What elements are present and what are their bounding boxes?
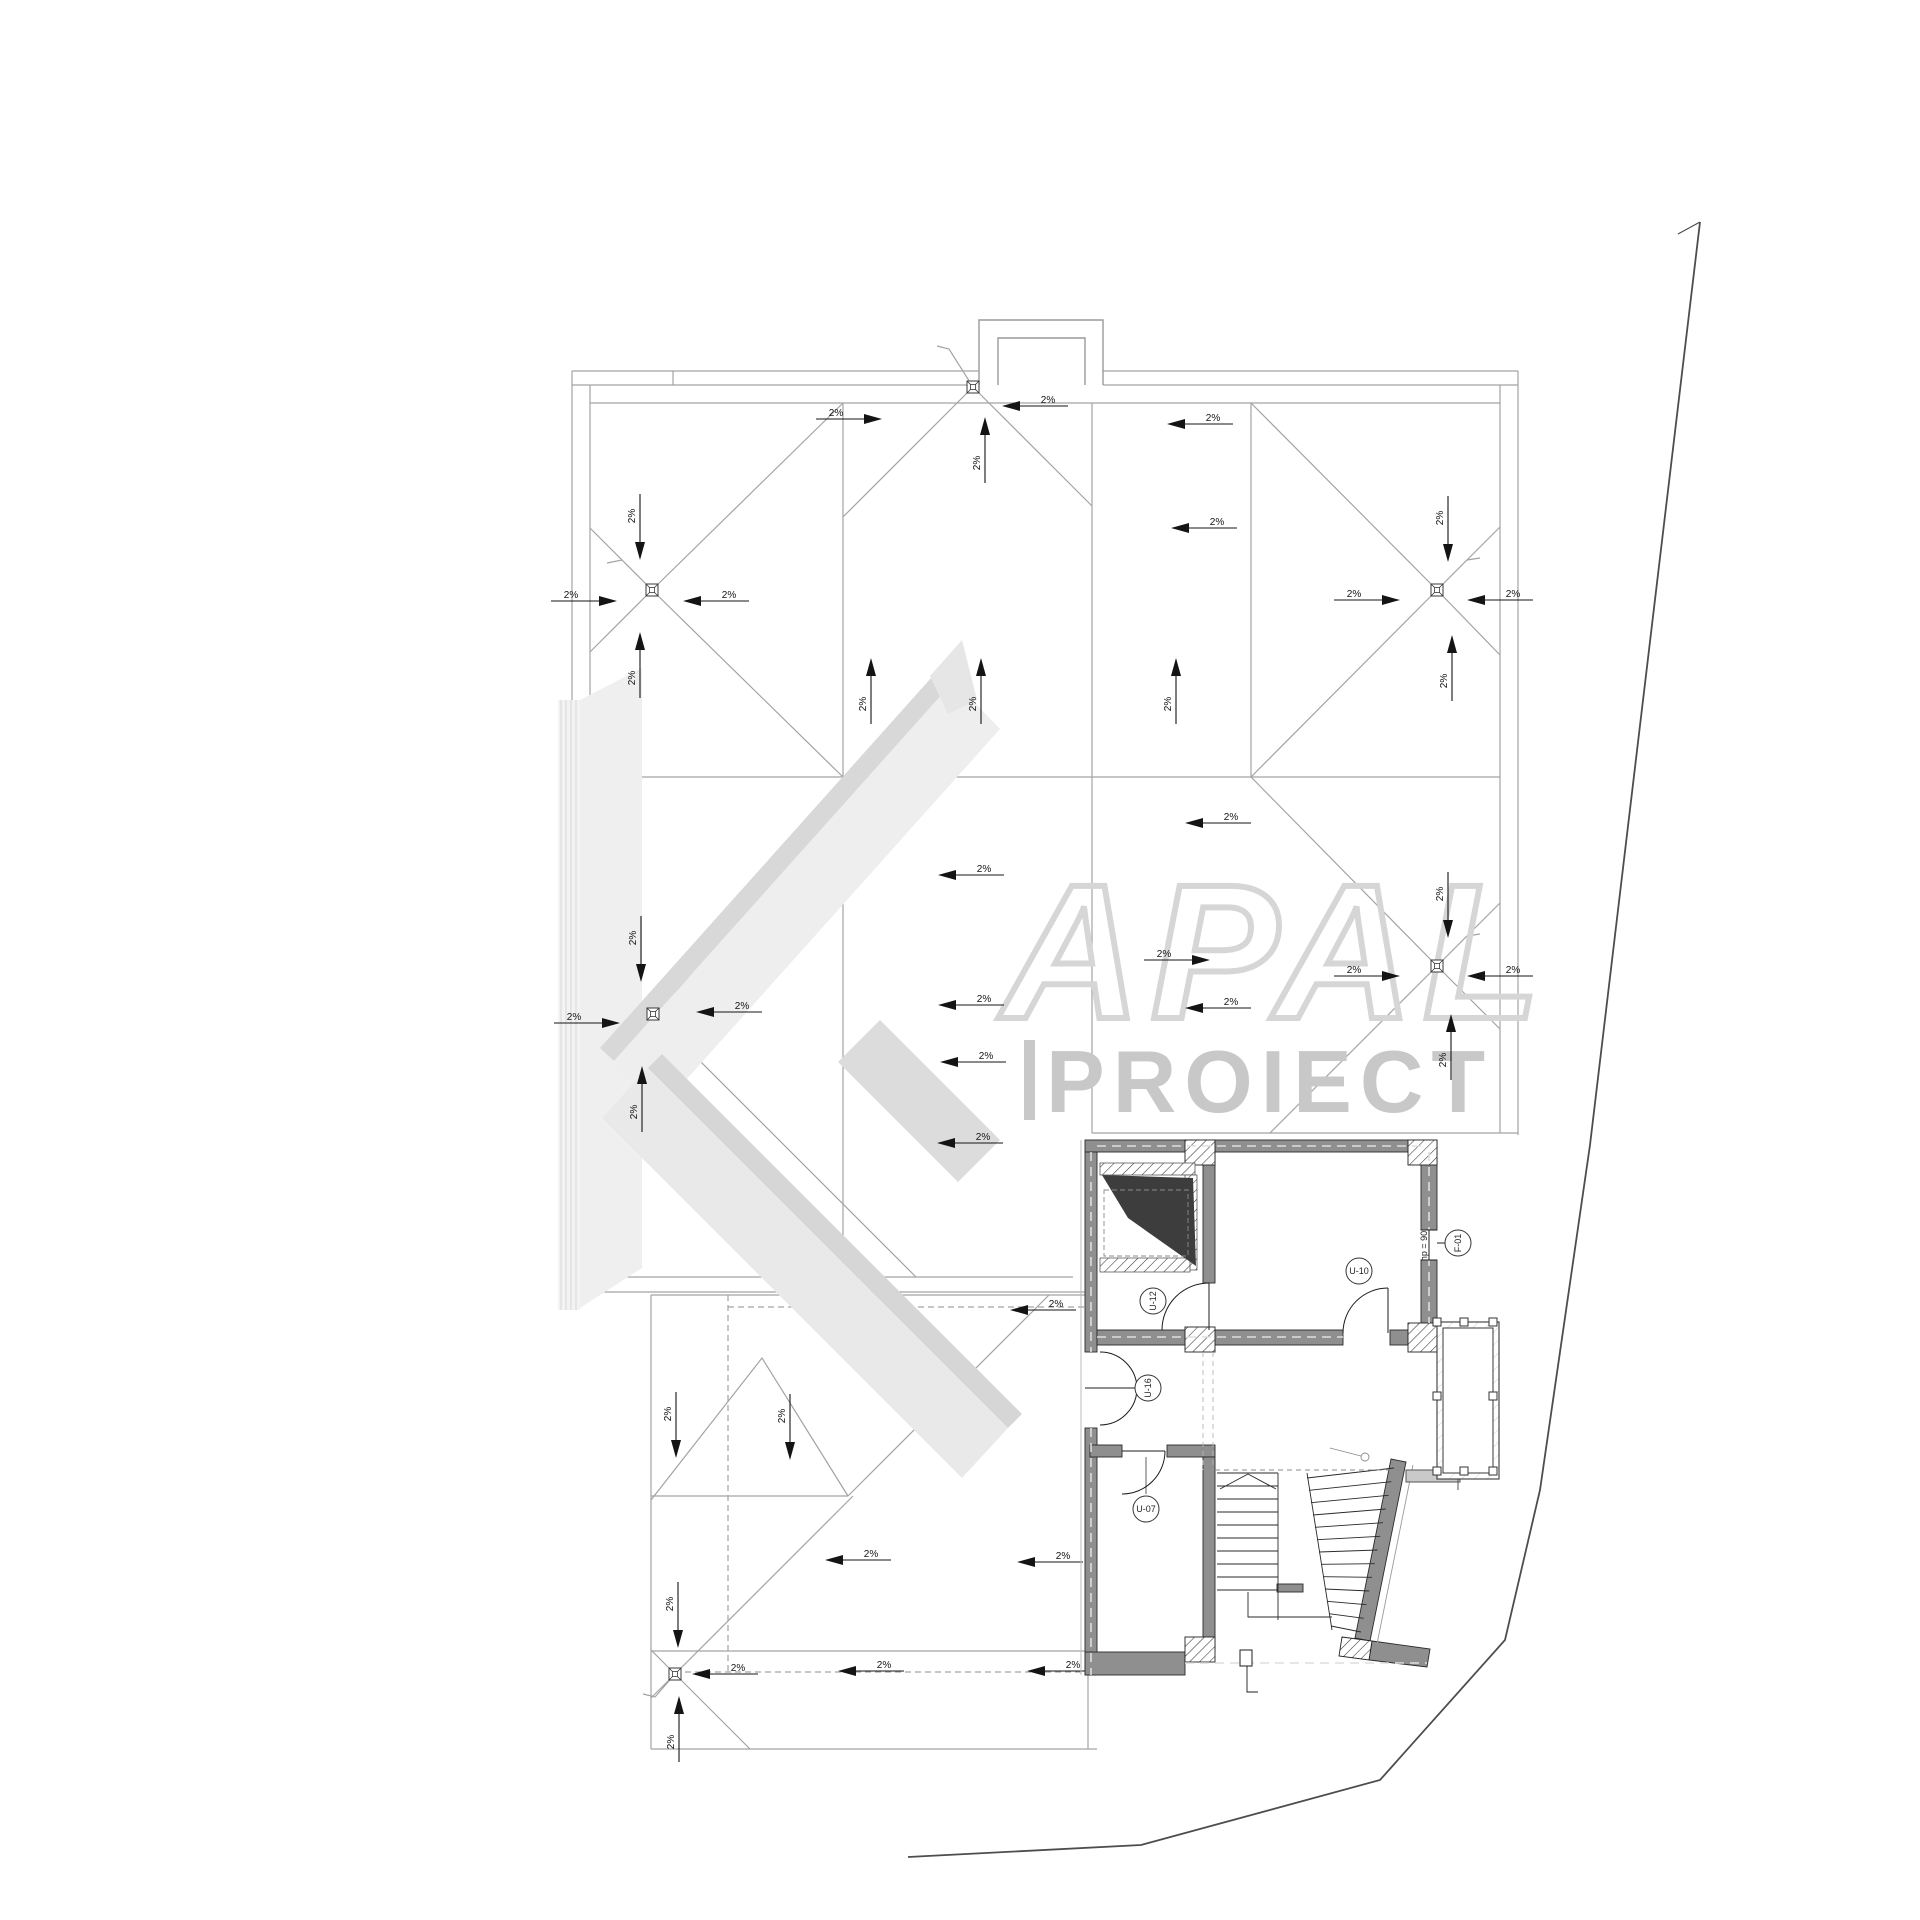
- slope-arrow: 2%: [972, 417, 990, 483]
- wall-room3-top-b: [1167, 1445, 1215, 1457]
- slope-arrow: 2%: [627, 494, 645, 560]
- svg-text:2%: 2%: [663, 1407, 674, 1422]
- slope-arrow: 2%: [816, 408, 882, 424]
- svg-text:F-01: F-01: [1453, 1234, 1463, 1253]
- slope-arrow: 2%: [1439, 635, 1457, 701]
- svg-text:2%: 2%: [829, 408, 844, 419]
- chimney-outline: [979, 320, 1103, 385]
- slope-arrow: 2%: [683, 590, 749, 606]
- watermark-k-left-bar: [580, 668, 642, 1308]
- staircase: [1203, 1352, 1413, 1644]
- svg-text:2%: 2%: [564, 590, 579, 601]
- svg-text:2%: 2%: [777, 1409, 788, 1424]
- svg-text:2%: 2%: [627, 509, 638, 524]
- wall-stair-slanted: [1355, 1459, 1406, 1641]
- floor-plan: hp = 90: [1081, 1140, 1499, 1692]
- door-u12: [1162, 1283, 1209, 1330]
- door-u07: [1122, 1451, 1165, 1494]
- bay-window-railing: [1433, 1318, 1499, 1479]
- slope-arrow: 2%: [940, 1051, 1006, 1067]
- slope-arrow: 2%: [663, 1392, 681, 1458]
- svg-text:U-07: U-07: [1136, 1504, 1156, 1514]
- slope-arrow: 2%: [938, 994, 1004, 1010]
- svg-text:2%: 2%: [1506, 965, 1521, 976]
- plan-tag: U-12: [1140, 1288, 1166, 1314]
- svg-text:2%: 2%: [567, 1012, 582, 1023]
- door-u10: [1343, 1288, 1388, 1333]
- stair-straight-flight: [1217, 1473, 1278, 1590]
- slope-arrow: 2%: [1167, 413, 1233, 429]
- svg-text:2%: 2%: [976, 1132, 991, 1143]
- slope-arrow: 2%: [938, 864, 1004, 880]
- slope-arrow: 2%: [825, 1549, 891, 1565]
- svg-text:2%: 2%: [972, 456, 983, 471]
- svg-text:2%: 2%: [1056, 1551, 1071, 1562]
- slope-arrow: 2%: [777, 1394, 795, 1460]
- railing-post: [1433, 1392, 1441, 1400]
- drain-symbol: [647, 1008, 659, 1020]
- svg-text:U-12: U-12: [1148, 1291, 1158, 1311]
- svg-text:2%: 2%: [1224, 997, 1239, 1008]
- svg-text:U-10: U-10: [1349, 1266, 1369, 1276]
- slope-arrow: 2%: [1435, 496, 1453, 562]
- svg-text:2%: 2%: [1347, 589, 1362, 600]
- watermark-k-mid-piece: [838, 1020, 1000, 1182]
- svg-text:2%: 2%: [1163, 697, 1174, 712]
- plan-tag: U-10: [1346, 1258, 1372, 1284]
- railing-post: [1460, 1318, 1468, 1326]
- slope-arrow: 2%: [1171, 517, 1237, 533]
- railing-post: [1489, 1467, 1497, 1475]
- plan-tag: U-07: [1133, 1496, 1159, 1522]
- svg-text:2%: 2%: [666, 1735, 677, 1750]
- svg-text:2%: 2%: [858, 697, 869, 712]
- railing-post: [1489, 1392, 1497, 1400]
- drain-symbol: [1431, 960, 1443, 972]
- svg-text:2%: 2%: [977, 994, 992, 1005]
- wall-room3-top-a: [1090, 1445, 1122, 1457]
- slope-arrow: 2%: [1163, 658, 1181, 724]
- svg-text:2%: 2%: [628, 931, 639, 946]
- stair-direction-mark: [1220, 1474, 1276, 1489]
- threshold: [1240, 1650, 1258, 1692]
- watermark-k-upper-arm: [614, 681, 1000, 1109]
- slope-arrow: 2%: [838, 1660, 904, 1676]
- drain-symbol: [646, 584, 658, 596]
- slope-arrow: 2%: [665, 1582, 683, 1648]
- stair-landing-stub: [1277, 1584, 1303, 1592]
- void-shadow: [1102, 1175, 1196, 1266]
- svg-text:2%: 2%: [1210, 517, 1225, 528]
- svg-text:2%: 2%: [629, 1105, 640, 1120]
- slope-arrow: 2%: [1027, 1660, 1093, 1676]
- svg-text:2%: 2%: [627, 671, 638, 686]
- gable-lines: [651, 1358, 848, 1500]
- slope-arrow: 2%: [1017, 1551, 1083, 1567]
- svg-text:2%: 2%: [1347, 965, 1362, 976]
- slope-arrow: 2%: [551, 590, 617, 606]
- railing-post: [1489, 1318, 1497, 1326]
- watermark-logo: APAL PROIECT: [558, 640, 1550, 1478]
- railing-post: [1460, 1467, 1468, 1475]
- window-f01: hp = 90: [1419, 1230, 1445, 1261]
- svg-text:2%: 2%: [1438, 1053, 1449, 1068]
- watermark-letters: APAL: [998, 844, 1550, 1059]
- doors: [1085, 1283, 1388, 1494]
- svg-text:2%: 2%: [1041, 395, 1056, 406]
- svg-text:2%: 2%: [1066, 1660, 1081, 1671]
- railing-post: [1433, 1467, 1441, 1475]
- plan-tag: F-01: [1445, 1230, 1471, 1256]
- svg-text:2%: 2%: [1224, 812, 1239, 823]
- svg-text:2%: 2%: [877, 1660, 892, 1671]
- wall-room3-right: [1203, 1457, 1215, 1650]
- svg-text:2%: 2%: [735, 1001, 750, 1012]
- watermark-k-upper-edge: [600, 668, 954, 1061]
- slope-arrow: 2%: [858, 658, 876, 724]
- drain-symbol: [669, 1668, 681, 1680]
- slope-arrow: 2%: [1185, 812, 1251, 828]
- watermark-proiect: PROIECT: [1046, 1032, 1493, 1131]
- svg-text:2%: 2%: [1435, 511, 1446, 526]
- svg-text:2%: 2%: [1435, 887, 1446, 902]
- svg-text:2%: 2%: [1049, 1299, 1064, 1310]
- svg-text:U-16: U-16: [1143, 1378, 1153, 1398]
- slope-arrow: 2%: [1334, 589, 1400, 605]
- svg-text:2%: 2%: [864, 1549, 879, 1560]
- svg-text:2%: 2%: [722, 590, 737, 601]
- window-sill-note: hp = 90: [1419, 1231, 1429, 1261]
- svg-text:2%: 2%: [968, 697, 979, 712]
- slope-arrow: 2%: [666, 1696, 684, 1762]
- slope-arrow: 2%: [692, 1663, 758, 1679]
- stair-void: [1100, 1163, 1197, 1272]
- wall-room-divider: [1203, 1152, 1215, 1283]
- svg-text:2%: 2%: [977, 864, 992, 875]
- plan-tag: U-16: [1135, 1375, 1161, 1401]
- svg-text:2%: 2%: [1506, 589, 1521, 600]
- svg-text:2%: 2%: [665, 1597, 676, 1612]
- door-u16-double: [1085, 1352, 1137, 1425]
- site-plan-canvas: APAL PROIECT 2%2%2%2%2%2%2%2%2%2%2%2%2%2…: [0, 0, 1920, 1920]
- drawing-sheet: APAL PROIECT 2%2%2%2%2%2%2%2%2%2%2%2%2%2…: [0, 0, 1920, 1920]
- wall-bottom-left: [1085, 1652, 1185, 1675]
- railing-post: [1433, 1318, 1441, 1326]
- hatch-columns: [1185, 1140, 1437, 1662]
- stair-landing: [1248, 1592, 1332, 1617]
- svg-text:2%: 2%: [1157, 949, 1172, 960]
- svg-text:2%: 2%: [979, 1051, 994, 1062]
- watermark-hatch-panel: [558, 700, 580, 1310]
- drain-symbol: [967, 381, 979, 393]
- wall-middle-b: [1390, 1330, 1408, 1345]
- drain-symbol: [1431, 584, 1443, 596]
- watermark-bar: [1024, 1040, 1035, 1120]
- svg-text:2%: 2%: [1439, 674, 1450, 689]
- svg-text:2%: 2%: [731, 1663, 746, 1674]
- svg-text:2%: 2%: [1206, 413, 1221, 424]
